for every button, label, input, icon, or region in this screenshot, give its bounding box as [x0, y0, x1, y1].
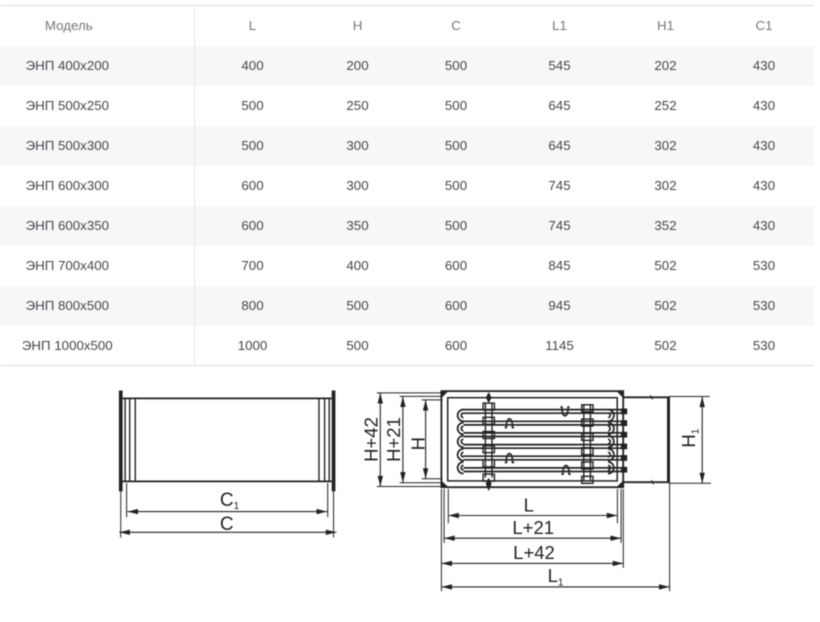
svg-text:H: H	[408, 437, 429, 450]
svg-text:L+42: L+42	[513, 542, 555, 563]
svg-text:H1: H1	[678, 428, 701, 447]
svg-text:H+21: H+21	[383, 417, 404, 462]
svg-text:L1: L1	[548, 565, 564, 588]
svg-text:L: L	[524, 494, 534, 515]
svg-text:C1: C1	[220, 490, 240, 512]
svg-text:L+21: L+21	[512, 517, 554, 538]
svg-text:C: C	[220, 514, 234, 535]
svg-text:H+42: H+42	[361, 417, 382, 462]
